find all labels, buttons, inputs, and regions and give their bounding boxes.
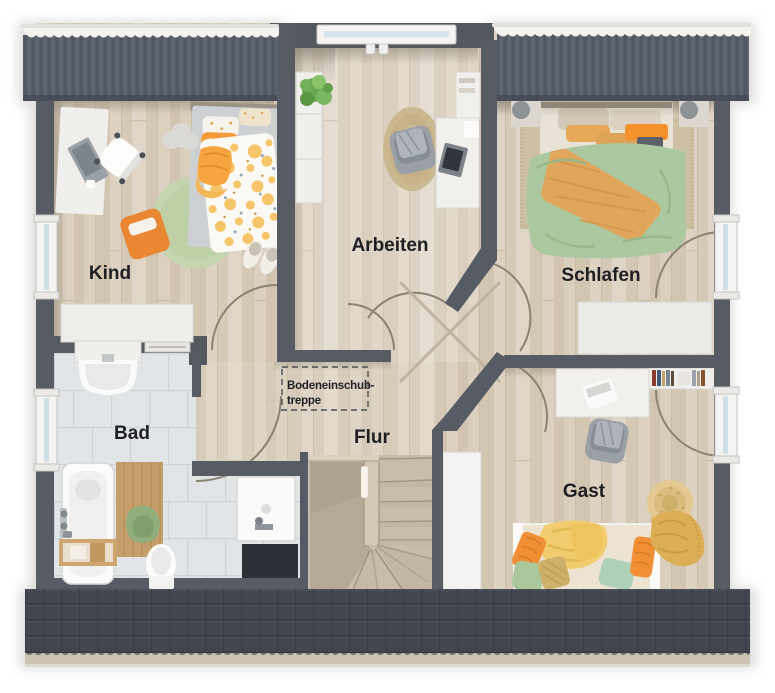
svg-text:Flur: Flur: [354, 427, 390, 448]
svg-text:Kind: Kind: [89, 263, 131, 284]
svg-text:Bad: Bad: [114, 423, 150, 444]
svg-text:Bodeneinschub-: Bodeneinschub-: [287, 380, 375, 392]
svg-text:Arbeiten: Arbeiten: [351, 235, 428, 256]
svg-text:Schlafen: Schlafen: [561, 265, 640, 286]
svg-text:Gast: Gast: [563, 481, 606, 502]
svg-text:treppe: treppe: [287, 395, 321, 407]
